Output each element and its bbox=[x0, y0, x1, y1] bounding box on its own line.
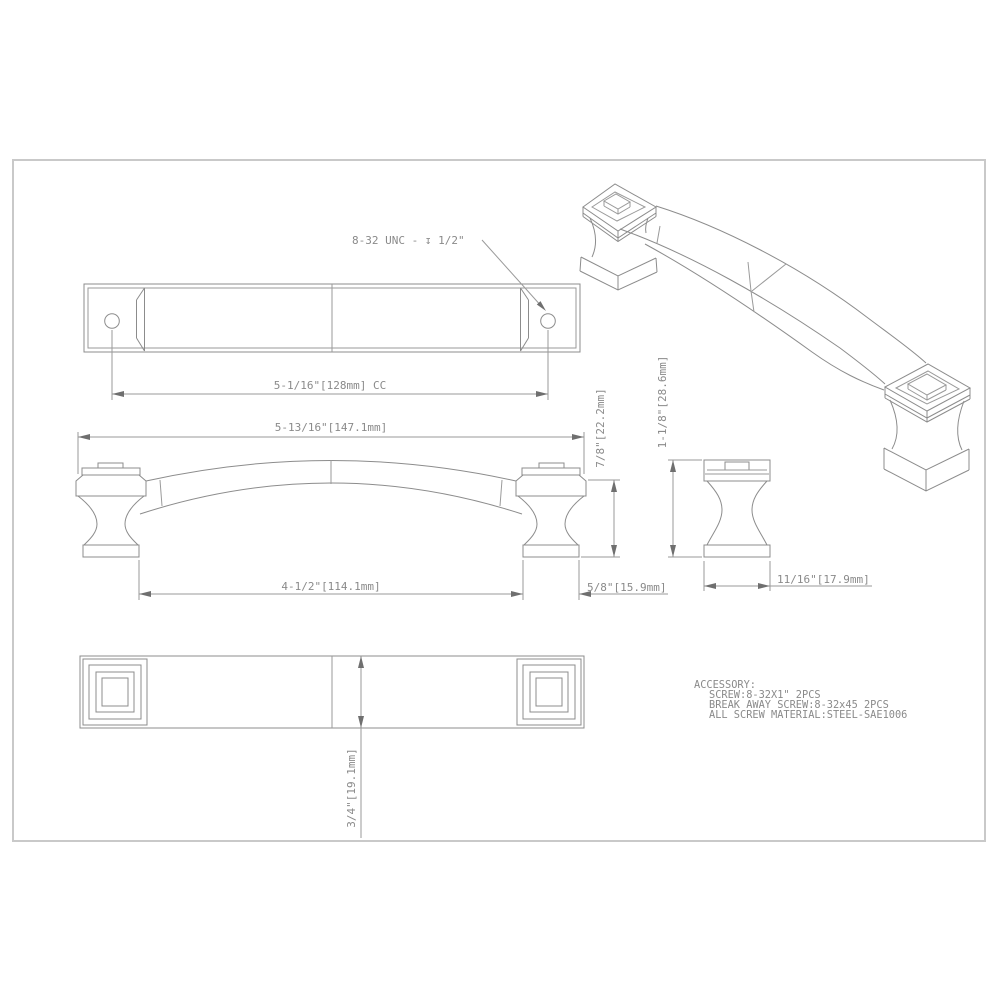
left-foot-base bbox=[83, 545, 139, 557]
right-foot-base bbox=[523, 545, 579, 557]
accessory-line-3: ALL SCREW MATERIAL:STEEL-SAE1006 bbox=[709, 709, 907, 721]
bar-height-arrow-bottom bbox=[611, 545, 617, 557]
thread-callout-text: 8-32 UNC - ↧ 1/2" bbox=[352, 234, 465, 247]
right-foot-collar bbox=[516, 475, 586, 496]
overall-arrow-right bbox=[572, 434, 584, 440]
side-view bbox=[704, 460, 770, 557]
foot-base-width-dimension: 5/8"[15.9mm] bbox=[579, 581, 668, 597]
front-view bbox=[76, 460, 586, 557]
top-view bbox=[84, 284, 580, 352]
bar-width-arrow-top bbox=[358, 656, 364, 668]
left-joint-lines bbox=[137, 288, 145, 351]
bar-height-dimension: 7/8"[22.2mm] bbox=[581, 388, 620, 557]
side-foot-top-step bbox=[725, 462, 749, 470]
left-foot-stem-left bbox=[78, 496, 97, 545]
iso-bar-joint-lines bbox=[657, 226, 786, 312]
cc-arrow-right bbox=[536, 391, 548, 397]
left-foot-top-step bbox=[98, 463, 123, 468]
bar-width-arrow-bottom bbox=[358, 716, 364, 728]
drawing-sheet: 8-32 UNC - ↧ 1/2" 5-1/16"[128mm] CC bbox=[0, 0, 1000, 1000]
side-foot-base bbox=[704, 545, 770, 557]
bottom-right-pad bbox=[517, 659, 581, 725]
foot-height-dimension: 1-1/8"[28.6mm] bbox=[656, 356, 702, 557]
iso-far-base bbox=[580, 257, 657, 290]
iso-near-neck-left bbox=[890, 400, 897, 449]
side-foot-width-text: 11/16"[17.9mm] bbox=[777, 573, 870, 586]
foot-height-dimension-text: 1-1/8"[28.6mm] bbox=[656, 356, 669, 449]
side-foot-width-arrow-left bbox=[704, 583, 716, 589]
foot-height-arrow-top bbox=[670, 460, 676, 472]
side-foot-stem-right bbox=[752, 481, 767, 545]
iso-far-neck-right bbox=[646, 218, 648, 233]
left-foot-step bbox=[82, 468, 140, 475]
inner-span-dimension-text: 4-1/2"[114.1mm] bbox=[281, 580, 380, 593]
iso-bar-bottom-edge bbox=[645, 244, 884, 390]
thread-callout: 8-32 UNC - ↧ 1/2" bbox=[352, 234, 546, 311]
foot-height-arrow-bottom bbox=[670, 545, 676, 557]
side-foot-step-lines bbox=[705, 470, 769, 474]
right-foot-stem-right bbox=[565, 496, 584, 545]
iso-near-base bbox=[884, 448, 969, 491]
right-joint-lines bbox=[521, 288, 529, 351]
left-foot-stem-right bbox=[125, 496, 144, 545]
bar-height-dimension-text: 7/8"[22.2mm] bbox=[594, 388, 607, 467]
foot-base-width-text: 5/8"[15.9mm] bbox=[587, 581, 666, 594]
mounting-hole-right bbox=[541, 314, 556, 329]
right-foot-stem-left bbox=[518, 496, 537, 545]
inner-span-arrow-right bbox=[511, 591, 523, 597]
iso-far-neck-left bbox=[590, 218, 596, 257]
bottom-left-pad bbox=[83, 659, 147, 725]
bar-width-dimension-text: 3/4"[19.1mm] bbox=[345, 748, 358, 827]
inner-span-dimension: 4-1/2"[114.1mm] bbox=[139, 560, 579, 600]
bar-height-arrow-top bbox=[611, 480, 617, 492]
cc-dimension-text: 5-1/16"[128mm] CC bbox=[274, 379, 387, 392]
iso-bar-top-edge bbox=[656, 206, 926, 363]
overall-arrow-left bbox=[78, 434, 90, 440]
side-foot-width-arrow-right bbox=[758, 583, 770, 589]
accessory-note: ACCESSORY: SCREW:8-32X1" 2PCS BREAK AWAY… bbox=[694, 679, 907, 721]
bar-bottom-edge bbox=[140, 483, 522, 514]
side-foot-stem-left bbox=[707, 481, 722, 545]
mounting-hole-left bbox=[105, 314, 120, 329]
bar-width-dimension: 3/4"[19.1mm] bbox=[345, 656, 364, 838]
iso-near-cap-rim bbox=[885, 387, 970, 422]
iso-view bbox=[580, 184, 970, 491]
overall-dimension-text: 5-13/16"[147.1mm] bbox=[275, 421, 388, 434]
side-foot-width-dimension: 11/16"[17.9mm] bbox=[704, 561, 872, 591]
bottom-view bbox=[80, 656, 584, 728]
thread-leader-line bbox=[482, 240, 543, 308]
cc-arrow-left bbox=[112, 391, 124, 397]
iso-near-neck-right bbox=[958, 401, 964, 450]
iso-far-cap-rim bbox=[583, 207, 656, 242]
left-foot-collar bbox=[76, 475, 146, 496]
inner-span-arrow-left bbox=[139, 591, 151, 597]
right-foot-top-step bbox=[539, 463, 564, 468]
cc-dimension: 5-1/16"[128mm] CC bbox=[112, 330, 548, 400]
drawing-canvas: 8-32 UNC - ↧ 1/2" 5-1/16"[128mm] CC bbox=[0, 0, 1000, 1000]
page-border bbox=[13, 160, 985, 841]
right-foot-step bbox=[522, 468, 580, 475]
